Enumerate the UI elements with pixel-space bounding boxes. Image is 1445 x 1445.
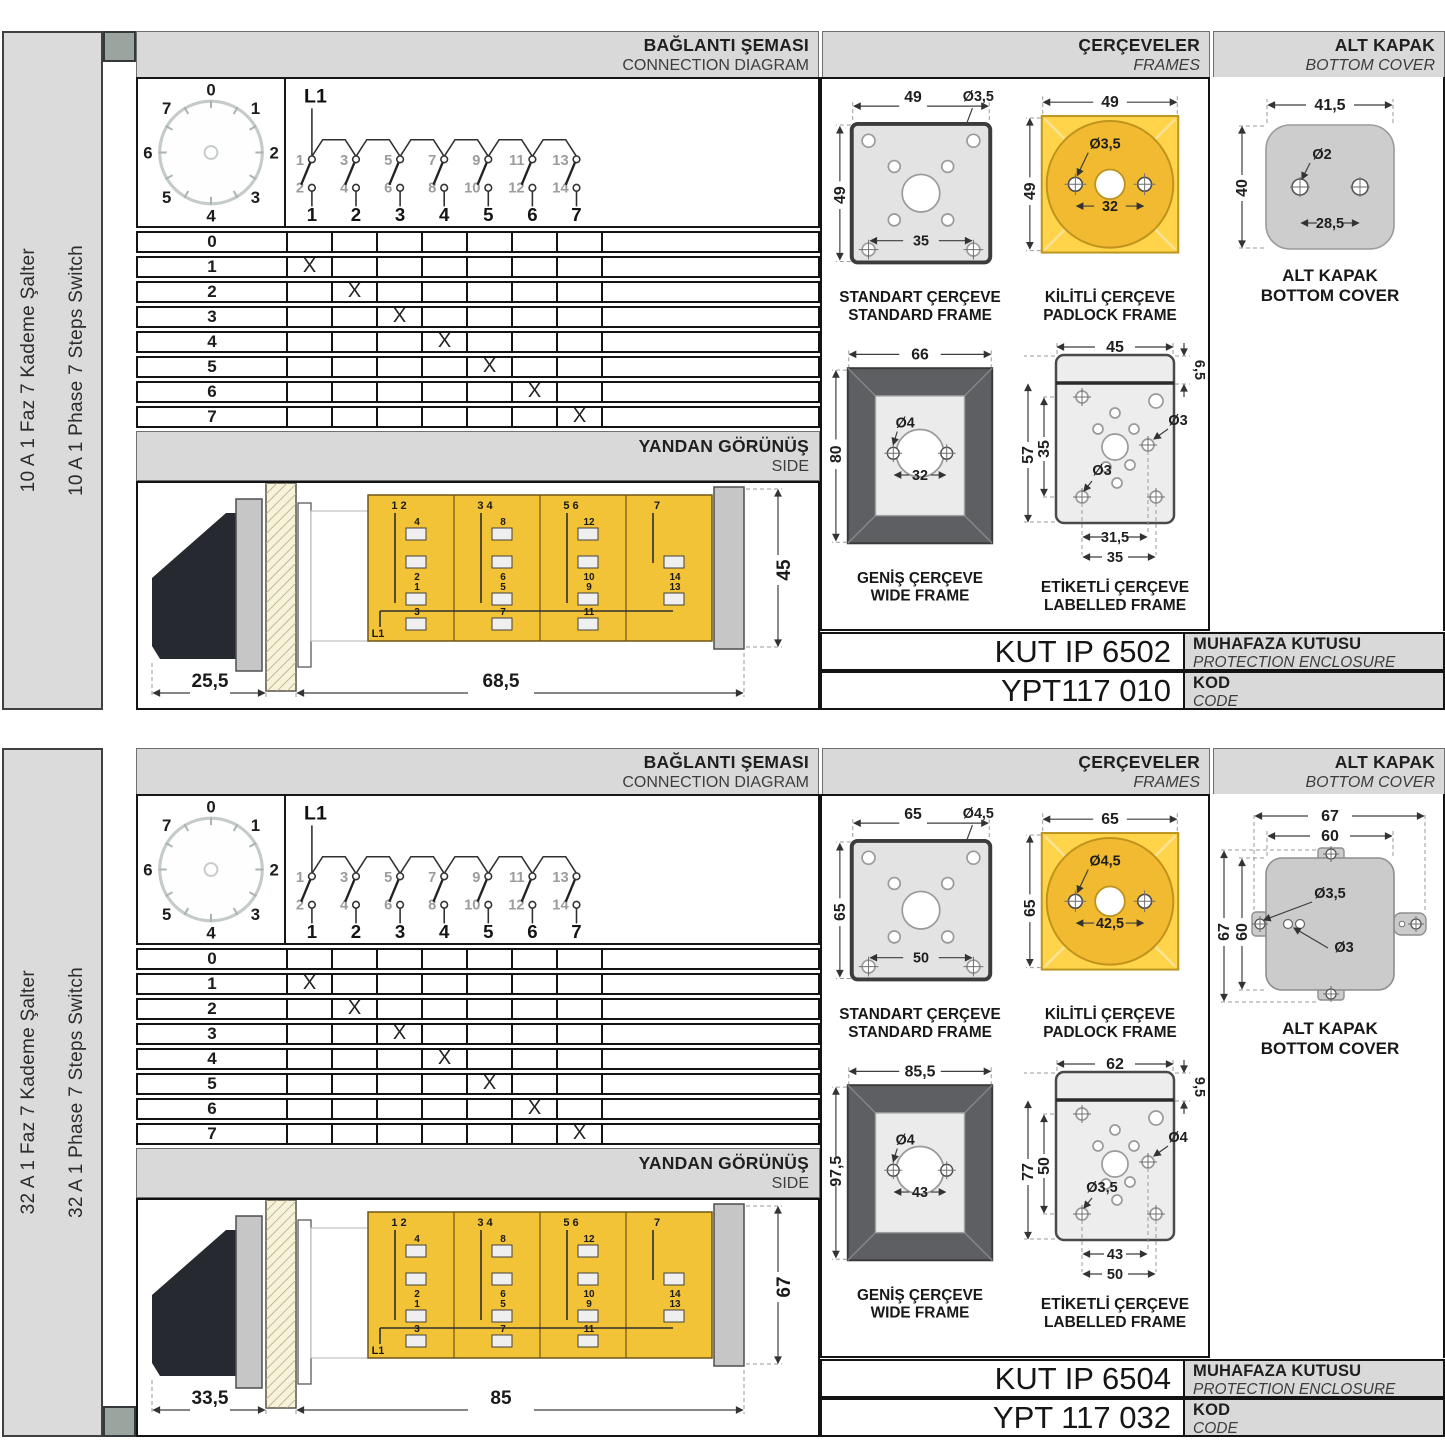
svg-text:5 6: 5 6: [563, 1217, 578, 1229]
cell: [468, 233, 513, 251]
cover-header-tr: ALT KAPAK: [1223, 751, 1435, 773]
cell: [333, 333, 378, 351]
labelled-frame-svg: 45 6,5 57 35: [1010, 335, 1206, 625]
filler-cell: [603, 333, 818, 351]
table-row: 4X: [136, 1048, 820, 1070]
dim-front-depth: 25,5: [192, 671, 229, 692]
dim-width: 65: [1101, 811, 1119, 828]
svg-text:3: 3: [414, 1324, 420, 1335]
svg-text:7: 7: [500, 607, 506, 618]
catalog-page: 10 A 1 Faz 7 Kademe Şalter 10 A 1 Phase …: [0, 0, 1445, 1445]
svg-text:1: 1: [296, 870, 304, 886]
cell: [558, 1050, 603, 1068]
product-name-tr-text: 10 A 1 Faz 7 Kademe Şalter: [18, 248, 40, 492]
wide-frame: 85,5 97,5 Ø4: [828, 1058, 1012, 1337]
dim-outer-width: 67: [1321, 808, 1339, 825]
switch-2: 34 2: [340, 153, 361, 225]
cell: [558, 358, 603, 376]
panel-content: BAĞLANTI ŞEMASI CONNECTION DIAGRAM ÇERÇE…: [136, 748, 1445, 1437]
svg-text:7: 7: [162, 99, 171, 118]
connection-header-tr: BAĞLANTI ŞEMASI: [146, 751, 809, 773]
enclosure-code-row: KUT IP 6502 MUHAFAZA KUTUSU PROTECTION E…: [820, 632, 1445, 671]
code-label-tr: KOD: [1193, 1400, 1435, 1420]
svg-text:4: 4: [439, 921, 450, 942]
product-name-en: 32 A 1 Phase 7 Steps Switch: [54, 750, 100, 1435]
dial-drawing: 0 1 2 3 4 5 6 7: [138, 79, 284, 226]
switch-6: 1112 6: [508, 153, 537, 225]
cell: [558, 975, 603, 993]
svg-text:13: 13: [669, 582, 681, 593]
cell: [423, 975, 468, 993]
cell: [378, 975, 423, 993]
dim-body-depth: 85: [490, 1388, 512, 1409]
labelled-frame: 62 9,5 77 50: [1010, 1052, 1206, 1347]
frame-title-en: LABELLED FRAME: [1044, 597, 1186, 614]
svg-text:5: 5: [384, 153, 392, 169]
dim-hole: Ø4: [896, 416, 915, 432]
switch-dial: 0 1 2 3 4 5 6 7: [136, 794, 286, 945]
filler-cell: [603, 1000, 818, 1018]
filler-cell: [603, 1025, 818, 1043]
cell: X: [423, 333, 468, 351]
frames-header-tr: ÇERÇEVELER: [832, 34, 1200, 56]
dim-height: 77: [1020, 1163, 1037, 1181]
frames-section: 49 Ø3,5 49: [820, 77, 1210, 631]
cell: [378, 233, 423, 251]
cell: X: [513, 1100, 558, 1118]
switch-7: 1314 7: [552, 153, 581, 225]
sidebar: 32 A 1 Faz 7 Kademe Şalter 32 A 1 Phase …: [2, 748, 103, 1437]
svg-text:7: 7: [654, 1217, 660, 1229]
cell: X: [378, 1025, 423, 1043]
enclosure-code: KUT IP 6502: [822, 634, 1183, 669]
switch-4: 78 4: [428, 153, 450, 225]
cell: [423, 1125, 468, 1143]
cell: X: [378, 308, 423, 326]
dim-hole: Ø4,5: [963, 806, 994, 822]
svg-text:4: 4: [206, 924, 216, 943]
filler-cell: [603, 233, 818, 251]
switch-7: 1314 7: [552, 870, 581, 942]
cell: [423, 383, 468, 401]
table-row: 7X: [136, 406, 820, 428]
padlock-frame: 49 49 Ø3,5: [1018, 89, 1202, 340]
dim-width: 65: [904, 806, 922, 823]
cell: [333, 358, 378, 376]
cell: [468, 1050, 513, 1068]
cell: [423, 408, 468, 426]
enclosure-code-row: KUT IP 6504 MUHAFAZA KUTUSU PROTECTION E…: [820, 1359, 1445, 1398]
frames-header: ÇERÇEVELER FRAMES: [822, 748, 1210, 795]
cell: [513, 950, 558, 968]
switch-3: 56 3: [384, 870, 405, 942]
dim-outer-height: 67: [1216, 923, 1233, 941]
row-label: 7: [138, 408, 288, 426]
cell: [468, 950, 513, 968]
labelled-frame-svg: 62 9,5 77 50: [1010, 1052, 1206, 1342]
svg-text:3 4: 3 4: [477, 500, 493, 512]
code-label-en: CODE: [1193, 1420, 1435, 1437]
table-row: 0: [136, 948, 820, 970]
connection-schematic: L1 12 1: [284, 77, 820, 228]
cell: X: [333, 1000, 378, 1018]
dim-hole-right: Ø3: [1168, 413, 1187, 429]
svg-text:5 6: 5 6: [563, 500, 578, 512]
frame-title-en: WIDE FRAME: [871, 1305, 970, 1322]
connection-diagram-header: BAĞLANTI ŞEMASI CONNECTION DIAGRAM: [136, 748, 819, 795]
svg-text:5: 5: [500, 582, 506, 593]
product-panel: 32 A 1 Faz 7 Kademe Şalter 32 A 1 Phase …: [0, 748, 1445, 1437]
frame-title-tr: ETİKETLİ ÇERÇEVE: [1041, 1296, 1189, 1313]
cell: X: [288, 258, 333, 276]
dim-height: 49: [832, 186, 849, 204]
cell: [333, 950, 378, 968]
cell: [513, 308, 558, 326]
cell: [333, 383, 378, 401]
table-row: 3X: [136, 306, 820, 328]
dim-height: 97,5: [828, 1156, 845, 1187]
switch-5: 910 5: [464, 870, 493, 942]
svg-text:0: 0: [206, 80, 215, 99]
cell: [468, 283, 513, 301]
side-view-header: YANDAN GÖRÜNÜŞ SIDE: [136, 431, 820, 481]
enclosure-label-tr: MUHAFAZA KUTUSU: [1193, 1361, 1435, 1381]
svg-text:1: 1: [296, 153, 304, 169]
cell: X: [468, 1075, 513, 1093]
dim-inner-width-2: 50: [1107, 1267, 1123, 1283]
cell: [558, 1100, 603, 1118]
cell: [333, 1125, 378, 1143]
frame-title-en: STANDARD FRAME: [848, 1024, 992, 1041]
svg-text:7: 7: [500, 1324, 506, 1335]
cell: [423, 233, 468, 251]
svg-text:2: 2: [351, 204, 361, 225]
dim-label-strip: 9,5: [1191, 1077, 1206, 1097]
cell: [378, 1050, 423, 1068]
cell: [558, 333, 603, 351]
row-label: 4: [138, 1050, 288, 1068]
svg-text:2: 2: [269, 860, 278, 879]
cell: [378, 1100, 423, 1118]
cell: [378, 950, 423, 968]
cover-title-en: BOTTOM COVER: [1260, 286, 1399, 305]
table-row: 5X: [136, 1073, 820, 1095]
product-name-en-text: 32 A 1 Phase 7 Steps Switch: [66, 967, 88, 1218]
cover-title-en: BOTTOM COVER: [1260, 1039, 1399, 1058]
bottom-cover-section: 41,5 40 Ø2 28,5 ALT KAPAK BOTTOM COVER: [1210, 77, 1445, 631]
svg-text:3: 3: [251, 188, 260, 207]
standard-frame: 65 Ø4,5 65: [828, 806, 1012, 1057]
cell: [513, 333, 558, 351]
cover-header: ALT KAPAK BOTTOM COVER: [1213, 748, 1445, 795]
standard-frame-svg: 65 Ø4,5 65: [828, 806, 1012, 1052]
dim-inner-width-2: 35: [1107, 550, 1123, 566]
table-row: 2X: [136, 998, 820, 1020]
frame-title-en: STANDARD FRAME: [848, 307, 992, 324]
phase-label: L1: [304, 86, 327, 108]
cell: [513, 258, 558, 276]
switch-contacts: 12 1 34 2 56: [296, 870, 582, 942]
svg-text:9: 9: [472, 153, 480, 169]
svg-text:3: 3: [395, 204, 405, 225]
connection-header-tr: BAĞLANTI ŞEMASI: [146, 34, 809, 56]
switch-2: 34 2: [340, 870, 361, 942]
cell: [468, 975, 513, 993]
cell: [333, 1075, 378, 1093]
dim-label-strip: 6,5: [1191, 360, 1206, 380]
sidebar: 10 A 1 Faz 7 Kademe Şalter 10 A 1 Phase …: [2, 31, 103, 710]
cell: [558, 283, 603, 301]
row-label: 0: [138, 950, 288, 968]
table-row: 1X: [136, 973, 820, 995]
cell: [468, 408, 513, 426]
filler-cell: [603, 1100, 818, 1118]
svg-text:11: 11: [509, 153, 525, 169]
cover-title-tr: ALT KAPAK: [1282, 1019, 1378, 1038]
cell: [468, 1125, 513, 1143]
bottom-cover-section: ALT KAPAK BOTTOM COVER: [1210, 794, 1445, 1358]
svg-text:11: 11: [584, 607, 595, 618]
filler-cell: [603, 408, 818, 426]
cell: [423, 258, 468, 276]
cover-header: ALT KAPAK BOTTOM COVER: [1213, 31, 1445, 78]
svg-text:1: 1: [307, 921, 317, 942]
cell: [468, 258, 513, 276]
dial-drawing: 0 1 2 3 4 5 6 7: [138, 796, 284, 943]
dim-inner: 35: [913, 234, 929, 250]
dim-inner-width: 60: [1321, 828, 1339, 845]
row-label: 1: [138, 975, 288, 993]
cell: [378, 358, 423, 376]
svg-text:4: 4: [414, 517, 420, 528]
cell: [378, 258, 423, 276]
cell: [423, 1000, 468, 1018]
switch-side-svg: L1 1 2 4 2 1 3 3 4: [138, 1200, 817, 1426]
order-code-label: KOD CODE: [1183, 1400, 1443, 1435]
dim-height: 49: [1022, 182, 1039, 200]
table-row: 4X: [136, 331, 820, 353]
side-header-en: SIDE: [147, 1174, 809, 1194]
cell: [558, 1025, 603, 1043]
svg-text:4: 4: [206, 207, 216, 226]
svg-text:1: 1: [251, 816, 260, 835]
switch-4: 78 4: [428, 870, 450, 942]
dim-inner-height: 50: [1036, 1157, 1053, 1175]
svg-text:3: 3: [251, 905, 260, 924]
bridge-links: [312, 857, 577, 874]
labelled-frame: 45 6,5 57 35: [1010, 335, 1206, 630]
cell: [423, 1075, 468, 1093]
padlock-frame-svg: 65 65 Ø4,5: [1018, 806, 1202, 1052]
wide-frame-svg: 85,5 97,5 Ø4: [828, 1058, 1012, 1332]
cell: [288, 408, 333, 426]
cell: [558, 950, 603, 968]
frames-section: 65 Ø4,5 65: [820, 794, 1210, 1358]
row-label: 3: [138, 308, 288, 326]
order-code: YPT 117 032: [822, 1400, 1183, 1435]
dim-inner: 28,5: [1315, 216, 1343, 232]
cell: [288, 1050, 333, 1068]
product-panel: 10 A 1 Faz 7 Kademe Şalter 10 A 1 Phase …: [0, 31, 1445, 710]
enclosure-code: KUT IP 6504: [822, 1361, 1183, 1396]
cell: [288, 283, 333, 301]
switch-contacts: 12 1 34 2 56: [296, 153, 582, 225]
svg-text:11: 11: [584, 1324, 595, 1335]
dim-front-depth: 33,5: [192, 1388, 229, 1409]
filler-cell: [603, 358, 818, 376]
switch-1: 12 1: [296, 870, 317, 942]
dim-inner-height: 60: [1234, 923, 1251, 941]
padlock-frame-svg: 49 49 Ø3,5: [1018, 89, 1202, 335]
svg-text:4: 4: [414, 1234, 420, 1245]
cell: [558, 308, 603, 326]
dim-hole-bottom: Ø3: [1092, 463, 1111, 479]
enclosure-code-label: MUHAFAZA KUTUSU PROTECTION ENCLOSURE: [1183, 1361, 1443, 1396]
cell: [558, 1000, 603, 1018]
svg-text:7: 7: [428, 153, 436, 169]
dim-width: 66: [911, 346, 929, 363]
svg-text:2: 2: [351, 921, 361, 942]
row-label: 2: [138, 1000, 288, 1018]
position-table: 0 1X 2X 3X 4X 5X 6X 7X: [136, 231, 820, 431]
connection-header-en: CONNECTION DIAGRAM: [146, 56, 809, 76]
dim-height: 80: [828, 445, 845, 463]
dim-inner-height: 35: [1036, 440, 1053, 458]
connection-schematic: L1 12 1: [284, 794, 820, 945]
enclosure-code-label: MUHAFAZA KUTUSU PROTECTION ENCLOSURE: [1183, 634, 1443, 669]
dim-inner: 42,5: [1096, 916, 1124, 932]
filler-cell: [603, 283, 818, 301]
dim-height: 65: [832, 903, 849, 921]
cell: X: [333, 283, 378, 301]
connection-header-en: CONNECTION DIAGRAM: [146, 773, 809, 793]
cell: [423, 283, 468, 301]
svg-text:13: 13: [669, 1299, 681, 1310]
cell: [288, 1100, 333, 1118]
cell: [288, 358, 333, 376]
svg-text:2: 2: [269, 143, 278, 162]
switch-6: 1112 6: [508, 870, 537, 942]
cell: X: [288, 975, 333, 993]
svg-text:5: 5: [500, 1299, 506, 1310]
switch-body: [152, 1200, 744, 1408]
svg-text:3: 3: [395, 921, 405, 942]
side-header-tr: YANDAN GÖRÜNÜŞ: [147, 435, 809, 457]
order-code-row: YPT 117 032 KOD CODE: [820, 1398, 1445, 1437]
order-code-row: YPT117 010 KOD CODE: [820, 671, 1445, 710]
svg-text:4: 4: [439, 204, 450, 225]
svg-text:5: 5: [384, 870, 392, 886]
svg-text:1: 1: [414, 582, 420, 593]
code-label-tr: KOD: [1193, 673, 1435, 693]
frames-header-en: FRAMES: [832, 773, 1200, 793]
dim-hole-2: Ø3: [1334, 940, 1353, 956]
side-header-en: SIDE: [147, 457, 809, 477]
dim-inner: 50: [913, 951, 929, 967]
svg-text:1: 1: [251, 99, 260, 118]
svg-text:11: 11: [509, 870, 525, 886]
table-row: 1X: [136, 256, 820, 278]
dim-inner: 32: [1102, 199, 1118, 215]
frame-title-en: PADLOCK FRAME: [1043, 307, 1176, 324]
svg-text:3: 3: [340, 153, 348, 169]
switch-5: 910 5: [464, 153, 493, 225]
svg-text:8: 8: [500, 1234, 506, 1245]
row-label: 6: [138, 1100, 288, 1118]
row-label: 7: [138, 1125, 288, 1143]
dim-width: 41,5: [1314, 97, 1345, 114]
svg-text:9: 9: [586, 1299, 592, 1310]
cell: [468, 1000, 513, 1018]
cell: [378, 1000, 423, 1018]
svg-text:9: 9: [472, 870, 480, 886]
svg-text:3: 3: [414, 607, 420, 618]
cell: [513, 975, 558, 993]
product-name-tr: 10 A 1 Faz 7 Kademe Şalter: [6, 33, 52, 708]
cell: X: [558, 408, 603, 426]
table-row: 6X: [136, 1098, 820, 1120]
cell: [333, 408, 378, 426]
svg-text:4: 4: [340, 898, 349, 914]
svg-text:13: 13: [552, 870, 568, 886]
cell: X: [423, 1050, 468, 1068]
cell: [513, 358, 558, 376]
cell: [513, 233, 558, 251]
dim-inner-width-1: 43: [1107, 1247, 1123, 1263]
dim-height: 65: [1022, 899, 1039, 917]
binding-strip: [103, 31, 136, 710]
svg-text:5: 5: [162, 188, 171, 207]
cell: [333, 1050, 378, 1068]
cell: X: [513, 383, 558, 401]
dim-width: 49: [904, 89, 922, 106]
svg-text:1: 1: [307, 204, 317, 225]
dim-hole: Ø2: [1312, 147, 1331, 163]
cell: [513, 283, 558, 301]
svg-text:1: 1: [414, 1299, 420, 1310]
schematic-drawing: L1 12 1: [286, 796, 818, 943]
svg-text:5: 5: [483, 921, 493, 942]
filler-cell: [603, 1050, 818, 1068]
svg-text:3 4: 3 4: [477, 1217, 493, 1229]
frame-title-tr: STANDART ÇERÇEVE: [839, 289, 1001, 306]
frame-title-tr: STANDART ÇERÇEVE: [839, 1006, 1001, 1023]
dim-hole: Ø4,5: [1090, 854, 1121, 870]
bottom-cover-plain-svg: 41,5 40 Ø2 28,5 ALT KAPAK BOTTOM COVER: [1214, 89, 1440, 341]
order-code: YPT117 010: [822, 673, 1183, 708]
row-label: 0: [138, 233, 288, 251]
filler-cell: [603, 258, 818, 276]
cell: [288, 383, 333, 401]
frame-title-tr: KİLİTLİ ÇERÇEVE: [1045, 1006, 1175, 1023]
bridge-links: [312, 140, 577, 157]
svg-text:3: 3: [340, 870, 348, 886]
dim-inner-width-1: 31,5: [1101, 530, 1129, 546]
side-view-header: YANDAN GÖRÜNÜŞ SIDE: [136, 1148, 820, 1198]
row-label: 5: [138, 358, 288, 376]
phase-label: L1: [304, 803, 327, 825]
cell: [513, 1050, 558, 1068]
svg-text:7: 7: [571, 204, 581, 225]
svg-text:0: 0: [206, 797, 215, 816]
cell: [423, 1025, 468, 1043]
side-view-drawing: L1 1 2 4 2 1 3 3 4: [136, 481, 820, 710]
cell: [423, 1100, 468, 1118]
svg-text:9: 9: [586, 582, 592, 593]
index-marker: [103, 1406, 136, 1437]
cell: [288, 233, 333, 251]
frame-title-tr: KİLİTLİ ÇERÇEVE: [1045, 289, 1175, 306]
